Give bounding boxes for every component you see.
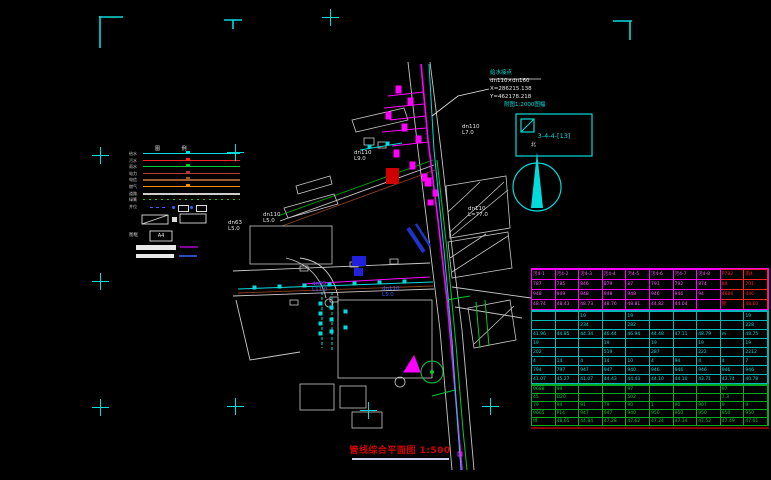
table-cell: 946 [674,365,698,374]
table-cell: 99 [556,385,580,393]
table-cell [650,320,674,329]
registration-cross [482,398,499,415]
table-cell: 222 [697,347,721,356]
table-cell [650,385,674,393]
table-cell [744,393,768,401]
table-cell: m [721,329,745,338]
drawing-title: 管线综合平面图 1:500 [348,443,452,456]
table-cell: 44.43 [603,374,627,383]
table-cell [721,320,745,329]
table-cell: 90 [626,401,650,409]
pipe-dimension-label: dn63 L11.0 [312,281,327,294]
table-cell: 44.43 [626,374,650,383]
table-cell: 9688 [532,385,556,393]
table-cell: 940 [626,365,650,374]
table-cell [674,347,698,356]
registration-cross [227,398,244,415]
table-cell: 41.96 [532,329,556,338]
table-cell: 9 [744,401,768,409]
table-cell: 907 [697,401,721,409]
table-cell: 19 [744,338,768,347]
table-cell: 47.24 [650,417,674,425]
table-cell: 97 [721,385,745,393]
table-cell: 4 [650,356,674,365]
table-cell [721,347,745,356]
registration-cross [92,399,109,416]
table-cell: 947 [579,409,603,417]
table-cell: 48.81 [626,299,650,309]
table-cell: 947 [603,365,627,374]
legend-row-label: 道路 [129,192,143,196]
table-cell: 4686 [721,289,745,299]
table-cell [697,311,721,320]
table-cell: 87 [626,279,650,289]
table-cell: 4 [579,356,603,365]
road-band-lines [238,160,435,293]
table-cell: 84 [721,279,745,289]
table-cell: 48.75 [744,329,768,338]
table-cell: 791 [650,279,674,289]
legend-row-marker [186,151,190,154]
table-cell: 46.44 [603,329,627,338]
table-cell: 950 [721,409,745,417]
table-cell: 202 [532,347,556,356]
table-cell: 44.48 [650,329,674,338]
table-cell [603,385,627,393]
table-cell: 48.43 [556,299,580,309]
legend-frame-size: A4 [150,231,172,241]
table-cell [532,311,556,320]
pipe-dimension-label: dn110 L5.0 [263,212,280,225]
legend-symbol-dot [172,206,175,209]
legend-row-label: 雨水 [129,165,143,169]
table-cell: 14 [556,356,580,365]
table-cell: 947 [579,365,603,374]
table-cell: 47.52 [697,417,721,425]
table-cell: 污4-3 [579,269,603,279]
table-cell: 950 [674,409,698,417]
table-cell: 90 [674,401,698,409]
table-cell: P14 [556,409,580,417]
table-cell: 14 [603,356,627,365]
table-cell [697,385,721,393]
table-cell: 950 [650,409,674,417]
table-cell: 519 [603,347,627,356]
table-cell: 43.71 [697,374,721,383]
table-cell: 绿 [532,417,556,425]
table-cell: 97 [626,385,650,393]
legend-row-label: 井位 [129,205,143,209]
table-cell: 502 [626,393,650,401]
table-cell [556,338,580,347]
table-cell: 污4-5 [626,269,650,279]
table-cell: 948 [579,289,603,299]
table-cell: 446 [744,289,768,299]
table-cell: 7.3 [721,393,745,401]
legend-row-line [143,153,240,154]
table-cell: 47.34 [674,417,698,425]
table-cell: 47.62 [626,417,650,425]
table-cell [650,311,674,320]
legend-row-label: 燃气 [129,185,143,189]
table-cell [674,385,698,393]
table-cell: 79 [603,401,627,409]
table-cell: 44.85 [556,329,580,338]
table-cell [674,320,698,329]
table-cell [532,320,556,329]
table-cell [579,347,603,356]
legend-symbol-dot [190,206,193,209]
table-cell [721,338,745,347]
table-cell: 污4-8 [697,269,721,279]
registration-cross [92,147,109,164]
table-cell: 19 [579,311,603,320]
table-cell: 948 [626,289,650,299]
table-cell [697,393,721,401]
table-cell: 94 [674,356,698,365]
legend-frame-label: 图框 [129,232,138,238]
table-cell: 946 [650,289,674,299]
title-underline [352,458,449,460]
legend-row-line [143,160,240,161]
table-cell: D20 [556,393,580,401]
table-cell: 91 [579,401,603,409]
table-cell: 48.76 [603,299,627,309]
legend-row-line [143,173,240,174]
table-cell: 48.60 [744,299,768,309]
cad-drawing-canvas[interactable]: 图 例 给水污水雨水电力电信燃气道路绿篱井位 图框 A4 dn110 L7.0d… [0,0,771,480]
legend-row-marker [186,177,190,180]
table-cell: 9005 [532,409,556,417]
table-cell: 785 [556,279,580,289]
table-cell: 48.79 [697,329,721,338]
table-cell [626,338,650,347]
elevation-table: 污4-1污4-2污4-3污4-4污4-5污4-6污4-7污4-8P782雨478… [531,268,769,429]
registration-cross [360,402,377,419]
legend-row-label: 电信 [129,178,143,182]
table-cell: 19 [744,311,768,320]
table-cell [697,299,721,309]
table-cell: 40.78 [744,374,768,383]
table-cell: 47.61 [744,417,768,425]
table-cell: 792 [674,279,698,289]
table-cell: P782 [721,269,745,279]
registration-cross [92,273,109,290]
table-cell: 44.82 [650,299,674,309]
table-cell: 4 [697,356,721,365]
table-cell: 4 [721,356,745,365]
table-cell [721,311,745,320]
table-cell: 43.74 [721,374,745,383]
table-cell: 污4-2 [556,269,580,279]
pipe-dimension-label: dn110 L5.0 [382,286,399,299]
callout-line: dn110×dn160 [490,78,532,86]
table-cell: 947 [603,409,627,417]
parcel-outlines [250,108,516,428]
table-cell [674,311,698,320]
table-cell: 1 [650,401,674,409]
callout-line: 给水接点 [490,70,532,78]
table-cell: 946 [697,365,721,374]
water-pipes [238,64,461,470]
legend-symbol-sq [196,205,207,212]
table-cell: 10 [626,356,650,365]
table-cell: 48.65 [556,417,580,425]
table-cell [603,320,627,329]
table-cell: 2212 [744,347,768,356]
table-cell: 44.34 [579,329,603,338]
table-cell: 948 [603,289,627,299]
table-cell: 46.94 [626,329,650,338]
index-box-caption: 附图1:2000图幅 [504,100,545,108]
table-cell [626,347,650,356]
legend-row-label: 给水 [129,152,143,156]
table-cell: 228 [744,320,768,329]
table-cell: 874 [697,279,721,289]
table-cell [579,385,603,393]
table-cell: 787 [532,279,556,289]
registration-cross [227,144,244,161]
table-cell: 797 [556,365,580,374]
legend-row-line [143,199,240,200]
table-cell: 794 [532,365,556,374]
misc-fills [352,168,430,276]
table-cell: 950 [744,409,768,417]
table-cell: 41.07 [532,374,556,383]
table-cell [603,393,627,401]
legend-row-marker [186,184,190,187]
table-cell: 19 [603,338,627,347]
table-cell: 94 [697,289,721,299]
table-cell: 234 [579,320,603,329]
legend-row-label: 电力 [129,172,143,176]
table-cell: 19 [650,338,674,347]
pipe-dimension-label: dn110 L=77.0 [468,206,488,219]
table-cell [674,338,698,347]
legend-row-line [143,186,240,187]
legend-row-line [143,166,240,167]
table-cell: 47.11 [674,329,698,338]
table-cell: 287 [650,347,674,356]
callout-line: X=286215.138 [490,86,532,94]
table-cell: 45 [532,393,556,401]
legend-symbol-dash [150,207,168,209]
pipe-dimension-label: dn63 L5.0 [228,220,242,233]
table-cell: 41.07 [579,374,603,383]
table-cell: 47.49 [721,417,745,425]
legend-row-marker [186,164,190,167]
registration-cross [322,9,339,26]
table-cell [603,311,627,320]
legend-row-line [143,193,240,196]
table-cell [556,347,580,356]
table-cell: 946 [721,365,745,374]
connection-callout: 给水接点dn110×dn160X=286215.138Y=462178.218 [490,70,532,102]
table-cell: 19 [532,338,556,347]
table-cell [579,393,603,401]
table-cell: 946 [674,289,698,299]
table-cell: 管 [721,299,745,309]
legend-row-label: 绿篱 [129,198,143,202]
table-cell: 48.73 [579,299,603,309]
north-arrow [513,152,561,211]
index-box-code: 3-4-4-[13] [516,132,592,140]
table-cell: 948 [532,289,556,299]
table-cell: 污4-4 [603,269,627,279]
table-cell: 879 [603,279,627,289]
table-cell: 45.27 [556,374,580,383]
legend-row-marker [186,158,190,161]
rain-section: 968899979745D205027.37994917990190907999… [531,384,769,426]
table-cell: 940 [626,409,650,417]
table-cell: 44.10 [674,374,698,383]
table-cell: 201 [744,279,768,289]
legend-symbol-sq [178,205,189,212]
table-cell: 950 [697,409,721,417]
table-cell: 44.04 [674,299,698,309]
table-cell: 48.74 [532,299,556,309]
table-cell: 282 [626,320,650,329]
table-cell: 污4-7 [674,269,698,279]
water-section: 19191923428222841.9644.8544.3446.4446.94… [531,310,769,384]
table-cell: 946 [650,365,674,374]
table-cell: 846 [579,279,603,289]
table-cell: 19 [626,311,650,320]
table-bottom-rule [531,427,769,429]
legend-row-label: 污水 [129,159,143,163]
table-cell: 44.10 [650,374,674,383]
sheet-corner-marks [99,16,632,48]
table-cell [697,320,721,329]
table-cell [674,393,698,401]
table-cell: 19 [697,338,721,347]
table-cell: 946 [744,365,768,374]
table-cell [744,385,768,393]
legend-row-marker [186,171,190,174]
table-cell [556,311,580,320]
table-cell: 47.28 [603,417,627,425]
table-cell: 94 [556,401,580,409]
pipe-dimension-label: dn110 L7.0 [462,124,479,137]
table-cell: 污4-6 [650,269,674,279]
table-cell [556,320,580,329]
table-cell: 污4-1 [532,269,556,279]
table-cell: 7 [744,356,768,365]
table-cell: 雨4 [744,269,768,279]
table-cell: 9 [721,401,745,409]
table-cell: 949 [556,289,580,299]
table-cell [579,338,603,347]
legend-header: 图 例 [155,145,197,152]
table-cell [650,393,674,401]
table-cell: 4 [532,356,556,365]
table-cell: 79 [532,401,556,409]
north-label: 北 [531,141,536,148]
pipe-dimension-label: dn110 L9.0 [354,150,371,163]
legend-row-line [143,179,240,180]
sewer-section: 污4-1污4-2污4-3污4-4污4-5污4-6污4-7污4-8P782雨478… [531,268,769,310]
table-cell: 44.84 [579,417,603,425]
